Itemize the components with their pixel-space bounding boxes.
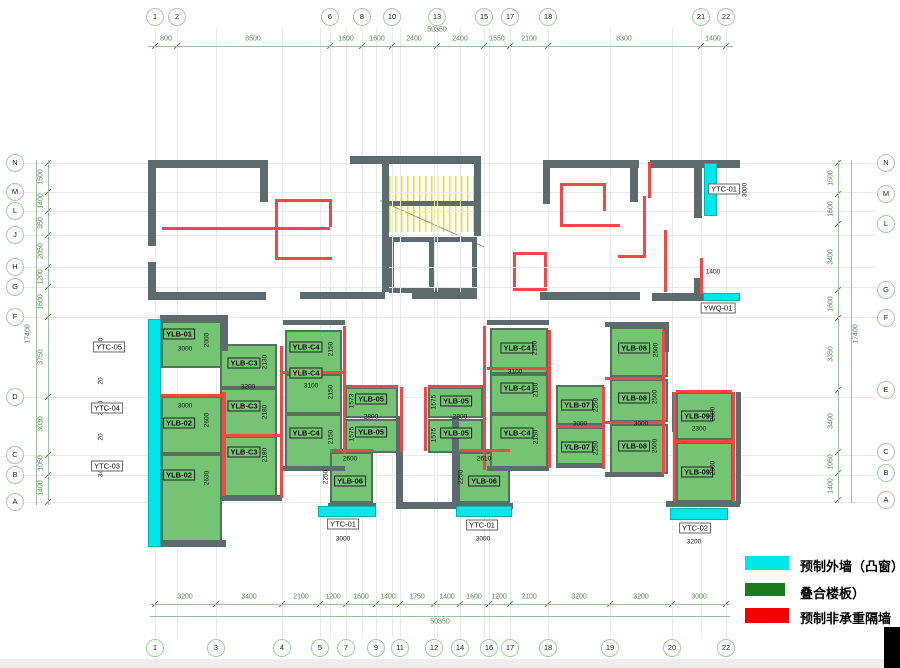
panel-label: YLB-05 (355, 394, 387, 405)
dimension-label: 1400 (38, 193, 45, 209)
dimension-label: 3400 (828, 249, 835, 265)
panel-label: YLB-C3 (227, 358, 260, 369)
dimension-label: 1400 (705, 36, 721, 43)
panel-dimension: 2150 (328, 385, 335, 399)
slab-panel (161, 454, 222, 544)
panel-dimension: 2250 (593, 398, 600, 412)
panel-dimension: 3000 (178, 346, 192, 353)
legend-label: 预制外墙（凸窗） (800, 556, 900, 575)
dimension-label: 1500 (38, 169, 45, 185)
dimension-label: 2100 (521, 36, 537, 43)
dimension-label: 3000 (691, 594, 707, 601)
component-tag: YTC-01 (327, 519, 359, 530)
dimension-label: 1750 (409, 594, 425, 601)
dimension-label: 8500 (245, 36, 261, 43)
dimension-label: 1600 (38, 294, 45, 310)
dimension-label: 1500 (828, 170, 835, 186)
panel-dimension: 3100 (304, 383, 318, 390)
structure-wall (382, 156, 389, 292)
partition-wall (548, 330, 551, 468)
grid-line-vertical (346, 28, 347, 638)
red-partition-room (513, 252, 547, 291)
grid-bubble: 5 (311, 639, 329, 657)
grid-bubble: 19 (601, 639, 619, 657)
dimension-label: 1400 (38, 480, 45, 496)
panel-dimension: 2300 (692, 426, 706, 433)
component-tag: YTC-01 (708, 184, 740, 195)
legend-label: 预制非承重隔墙 (800, 608, 891, 627)
precast-exterior-wall (703, 293, 740, 301)
component-tag: YTC-02 (679, 523, 711, 534)
grid-bubble: 22 (717, 8, 735, 26)
dimension-label: 2050 (38, 243, 45, 259)
grid-line-vertical (282, 28, 283, 638)
grid-line-vertical (460, 28, 461, 638)
corner-black-box (884, 627, 900, 668)
partition-wall (329, 199, 332, 227)
overall-dimension: 17400 (853, 324, 860, 343)
panel-dimension: 2800 (453, 414, 467, 421)
partition-wall (676, 390, 732, 393)
dimension-label: 3200 (571, 594, 587, 601)
panel-dimension: 2250 (323, 470, 330, 484)
dimension-label: 1600 (828, 201, 835, 217)
dimension-label: 3200 (177, 594, 193, 601)
panel-label: YLB-05 (440, 396, 472, 407)
grid-bubble: M (6, 183, 24, 201)
panel-dimension: 2130 (262, 355, 269, 369)
panel-dimension: 2500 (652, 390, 659, 404)
partition-wall (222, 392, 226, 496)
dimension-label: 1200 (491, 594, 507, 601)
partition-wall (280, 346, 283, 498)
dimension-label: 3750 (38, 349, 45, 365)
partition-wall (676, 440, 732, 443)
panel-label: YLB-09 (681, 467, 713, 478)
panel-dimension: 2150 (532, 341, 539, 355)
dimension-label: 3000 (476, 536, 490, 543)
structure-wall (736, 392, 741, 504)
precast-exterior-wall (456, 506, 512, 517)
panel-dimension: 2800 (364, 414, 378, 421)
partition-wall (560, 224, 620, 227)
structure-wall (396, 502, 459, 509)
red-swatch (745, 608, 789, 623)
partition-wall (662, 330, 665, 474)
dimension-label: 1550 (489, 36, 505, 43)
grid-bubble: 2 (168, 8, 186, 26)
panel-label: YLB-07 (561, 400, 593, 411)
partition-wall (343, 326, 346, 454)
panel-label: YLB-06 (468, 476, 500, 487)
structure-wall (487, 320, 549, 325)
panel-dimension: 2800 (710, 407, 717, 421)
dimension-label: 1200 (38, 269, 45, 285)
structure-wall (630, 160, 638, 202)
precast-exterior-wall (670, 508, 728, 520)
panel-dimension: 2150 (328, 342, 335, 356)
dimension-label: 3400 (241, 594, 257, 601)
grid-line-vertical (672, 28, 673, 638)
component-tag: YTC-03 (91, 461, 123, 472)
partition-wall (275, 199, 332, 202)
structure-wall (260, 160, 268, 202)
partition-wall (162, 227, 330, 230)
panel-dimension: 1573 (349, 394, 356, 408)
structure-wall (148, 168, 156, 246)
structure-wall (350, 156, 481, 164)
stair-landing-wall (389, 201, 474, 206)
panel-dimension: 2500 (653, 343, 660, 357)
grid-bubble: 17 (501, 8, 519, 26)
grid-bubble: 18 (539, 8, 557, 26)
structure-wall (222, 495, 282, 501)
grid-line-vertical (726, 28, 727, 638)
dimension-label: 3030 (38, 416, 45, 432)
floor-plan-canvas: 预制外墙（凸窗） 叠合楼板） 预制非承重隔墙 11234567891011121… (0, 0, 900, 668)
panel-label: YLB-07 (561, 442, 593, 453)
structure-wall (283, 466, 345, 471)
dimension-label: 8300 (616, 36, 632, 43)
grid-bubble: 8 (353, 8, 371, 26)
partition-wall (160, 394, 222, 397)
dimension-label: 3350 (828, 346, 835, 362)
structure-wall (148, 292, 266, 300)
dimension-label: 20 (98, 377, 105, 384)
grid-bubble: E (877, 381, 895, 399)
grid-bubble: C (6, 446, 24, 464)
dim-line-left (48, 160, 49, 505)
panel-label: YLB-01 (163, 329, 195, 340)
overall-dimension: 50350 (430, 619, 449, 626)
partition-wall (560, 183, 606, 186)
dimension-label: 2100 (521, 594, 537, 601)
structure-wall (300, 292, 385, 299)
partition-wall (275, 257, 332, 260)
panel-label: YLB-C4 (289, 428, 322, 439)
grid-bubble: M (877, 185, 895, 203)
dimension-label: 1400 (380, 594, 396, 601)
dimension-label: 3200 (633, 594, 649, 601)
structure-wall (540, 292, 640, 300)
partition-wall (648, 162, 651, 198)
grid-bubble: B (6, 466, 24, 484)
grid-bubble: 21 (692, 8, 710, 26)
panel-label: YLB-05 (440, 428, 472, 439)
panel-dimension: 3000 (573, 421, 587, 428)
structure-wall (412, 292, 477, 299)
dimension-label: 1600 (353, 594, 369, 601)
panel-label: YLB-08 (618, 343, 650, 354)
panel-dimension: 2250 (458, 470, 465, 484)
grid-bubble: F (6, 308, 24, 326)
component-tag: YTC-04 (91, 403, 123, 414)
panel-label: YLB-C4 (500, 343, 533, 354)
panel-dimension: 2000 (204, 333, 211, 347)
panel-label: YLB-C4 (500, 428, 533, 439)
dimension-label: 2100 (293, 594, 309, 601)
grid-bubble: 1 (146, 639, 164, 657)
dimension-label: 3400 (828, 413, 835, 429)
green-swatch (745, 583, 785, 596)
structure-wall (487, 466, 549, 471)
panel-dimension: 1575 (431, 428, 438, 442)
grid-bubble: 18 (539, 639, 557, 657)
component-tag: YWQ-01 (701, 303, 736, 314)
partition-wall (700, 258, 703, 294)
panel-dimension: 2180 (262, 405, 269, 419)
panel-dimension: 2180 (262, 448, 269, 462)
partition-wall (643, 196, 646, 258)
panel-label: YLB-C4 (289, 368, 322, 379)
grid-bubble: G (877, 281, 895, 299)
overall-dimension: 50350 (427, 27, 446, 34)
partition-wall (673, 392, 676, 502)
grid-line-vertical (434, 28, 435, 638)
partition-wall (424, 387, 427, 451)
overall-dimension: 17400 (25, 324, 32, 343)
grid-bubble: J (6, 226, 24, 244)
dimension-label: 1600 (466, 594, 482, 601)
partition-wall (603, 183, 606, 211)
structure-wall (222, 315, 228, 351)
dim-line-bottom-overall (150, 616, 730, 617)
panel-dimension: 2150 (328, 430, 335, 444)
cyan-swatch (745, 556, 789, 570)
panel-label: YLB-C3 (227, 447, 260, 458)
grid-bubble: 22 (717, 639, 735, 657)
panel-dimension: 3000 (178, 403, 192, 410)
grid-bubble: 17 (501, 639, 519, 657)
partition-wall (602, 387, 605, 469)
precast-exterior-wall (318, 506, 376, 517)
grid-bubble: L (6, 202, 24, 220)
grid-bubble: G (6, 278, 24, 296)
panel-label: YLB-06 (334, 476, 366, 487)
panel-label: YLB-08 (618, 393, 650, 404)
partition-wall (330, 449, 374, 452)
partition-wall (732, 392, 735, 502)
structure-wall (283, 320, 345, 325)
dim-line-bottom (150, 604, 730, 605)
dimension-label: 3000 (742, 183, 749, 197)
dimension-label: 350 (38, 217, 45, 229)
dimension-label: 1050 (38, 455, 45, 471)
dimension-label: 800 (160, 36, 172, 43)
panel-dimension: 2150 (533, 383, 540, 397)
dimension-label: 1600 (828, 296, 835, 312)
partition-wall (664, 230, 667, 292)
dimension-label: 20 (98, 433, 105, 440)
grid-line-vertical (392, 28, 393, 638)
grid-bubble: 10 (383, 8, 401, 26)
panel-dimension: 3200 (241, 384, 255, 391)
panel-dimension: 2600 (343, 456, 357, 463)
dimension-label: 1400 (828, 478, 835, 494)
structure-wall (160, 315, 224, 321)
partition-wall (618, 255, 645, 258)
grid-bubble: 4 (273, 639, 291, 657)
structure-wall (148, 160, 268, 168)
structure-wall (694, 163, 702, 218)
grid-bubble: 15 (475, 8, 493, 26)
structure-wall (543, 160, 639, 168)
panel-dimension: 2500 (652, 439, 659, 453)
panel-label: YLB-08 (618, 441, 650, 452)
dimension-label: 1400 (706, 269, 720, 276)
panel-label: YLB-02 (163, 418, 195, 429)
panel-dimension: 1575 (349, 427, 356, 441)
dim-line-right (838, 160, 839, 503)
grid-line-vertical (400, 28, 401, 638)
grid-bubble: 3 (207, 639, 225, 657)
grid-bubble: 6 (321, 8, 339, 26)
grid-bubble: 1 (146, 8, 164, 26)
grid-line-vertical (376, 28, 377, 638)
grid-line-vertical (701, 28, 702, 638)
component-tag: YTC-05 (93, 342, 125, 353)
grid-bubble: C (877, 443, 895, 461)
grid-bubble: 20 (663, 639, 681, 657)
slab-panel (220, 436, 277, 498)
panel-dimension: 2150 (533, 430, 540, 444)
dimension-label: 3000 (336, 536, 350, 543)
panel-dimension: 2600 (204, 413, 211, 427)
partition-wall (224, 434, 280, 437)
dimension-label: 1200 (325, 594, 341, 601)
panel-dimension: 2630 (204, 471, 211, 485)
grid-bubble: A (877, 491, 895, 509)
precast-exterior-wall (148, 319, 161, 547)
panel-label: YLB-C4 (500, 383, 533, 394)
component-tag: YTC-01 (466, 520, 498, 531)
dim-line-top (148, 46, 733, 47)
grid-bubble: L (877, 215, 895, 233)
dim-line-left-overall (36, 160, 37, 505)
grid-bubble: 13 (428, 8, 446, 26)
structure-wall (556, 463, 604, 468)
grid-bubble: N (877, 154, 895, 172)
partition-wall (275, 199, 278, 260)
dimension-label: 1600 (369, 36, 385, 43)
dimension-label: 3200 (687, 539, 701, 546)
dimension-label: 2400 (452, 36, 468, 43)
grid-bubble: 11 (391, 639, 409, 657)
grid-bubble: B (877, 464, 895, 482)
panel-dimension: 2250 (593, 441, 600, 455)
structure-wall (666, 501, 740, 507)
grid-bubble: 12 (425, 639, 443, 657)
grid-bubble: F (877, 309, 895, 327)
partition-wall (605, 377, 662, 380)
structure-wall (605, 472, 664, 477)
panel-label: YLB-C4 (289, 342, 322, 353)
dimension-label: 1400 (439, 594, 455, 601)
grid-bubble: A (6, 493, 24, 511)
partition-wall (400, 387, 403, 451)
bottom-strip (0, 659, 900, 668)
grid-line-horizontal (24, 317, 876, 318)
stair-flight-upper (389, 176, 474, 202)
legend-label: 叠合楼板） (800, 583, 865, 602)
grid-bubble: 7 (337, 639, 355, 657)
structure-wall (543, 160, 550, 204)
panel-label: YLB-02 (163, 470, 195, 481)
grid-bubble: 14 (451, 639, 469, 657)
grid-bubble: 16 (480, 639, 498, 657)
panel-dimension: 1575 (431, 395, 438, 409)
partition-wall (458, 449, 510, 452)
partition-wall (345, 385, 398, 388)
dimension-label: 1050 (828, 454, 835, 470)
panel-label: YLB-09 (681, 411, 713, 422)
grid-bubble: N (6, 154, 24, 172)
dimension-label: 1600 (338, 36, 354, 43)
structure-wall (474, 156, 481, 236)
structure-wall (605, 322, 664, 327)
grid-bubble: 9 (367, 639, 385, 657)
panel-dimension: 3100 (508, 369, 522, 376)
panel-label: YLB-C3 (227, 401, 260, 412)
panel-dimension: 2610 (477, 456, 491, 463)
grid-bubble: D (6, 388, 24, 406)
partition-wall (428, 385, 483, 388)
grid-line-vertical (437, 28, 438, 638)
panel-dimension: 2800 (710, 461, 717, 475)
dimension-label: 2400 (406, 36, 422, 43)
grid-line-vertical (362, 28, 363, 638)
partition-wall (560, 183, 563, 227)
panel-dimension: 3000 (634, 421, 648, 428)
grid-bubble: H (6, 258, 24, 276)
panel-label: YLB-05 (355, 427, 387, 438)
